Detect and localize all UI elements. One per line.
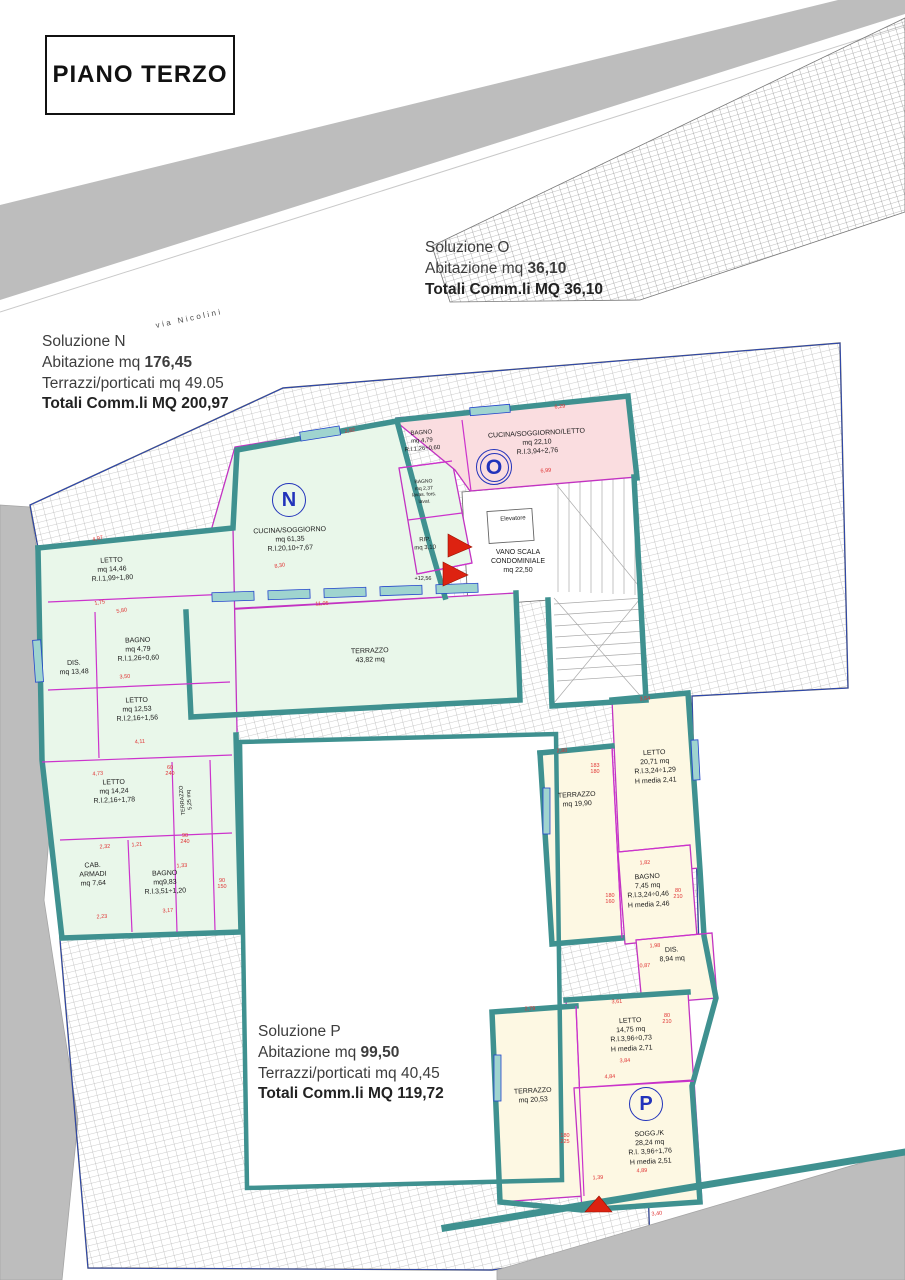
- floor-plan-drawing: [0, 0, 905, 1280]
- plan-title: PIANO TERZO: [45, 35, 235, 115]
- floor-plan-page: PIANO TERZO via Nicolini CUCINA/SOGGIORN…: [0, 0, 905, 1280]
- elevator-shaft: [487, 508, 534, 543]
